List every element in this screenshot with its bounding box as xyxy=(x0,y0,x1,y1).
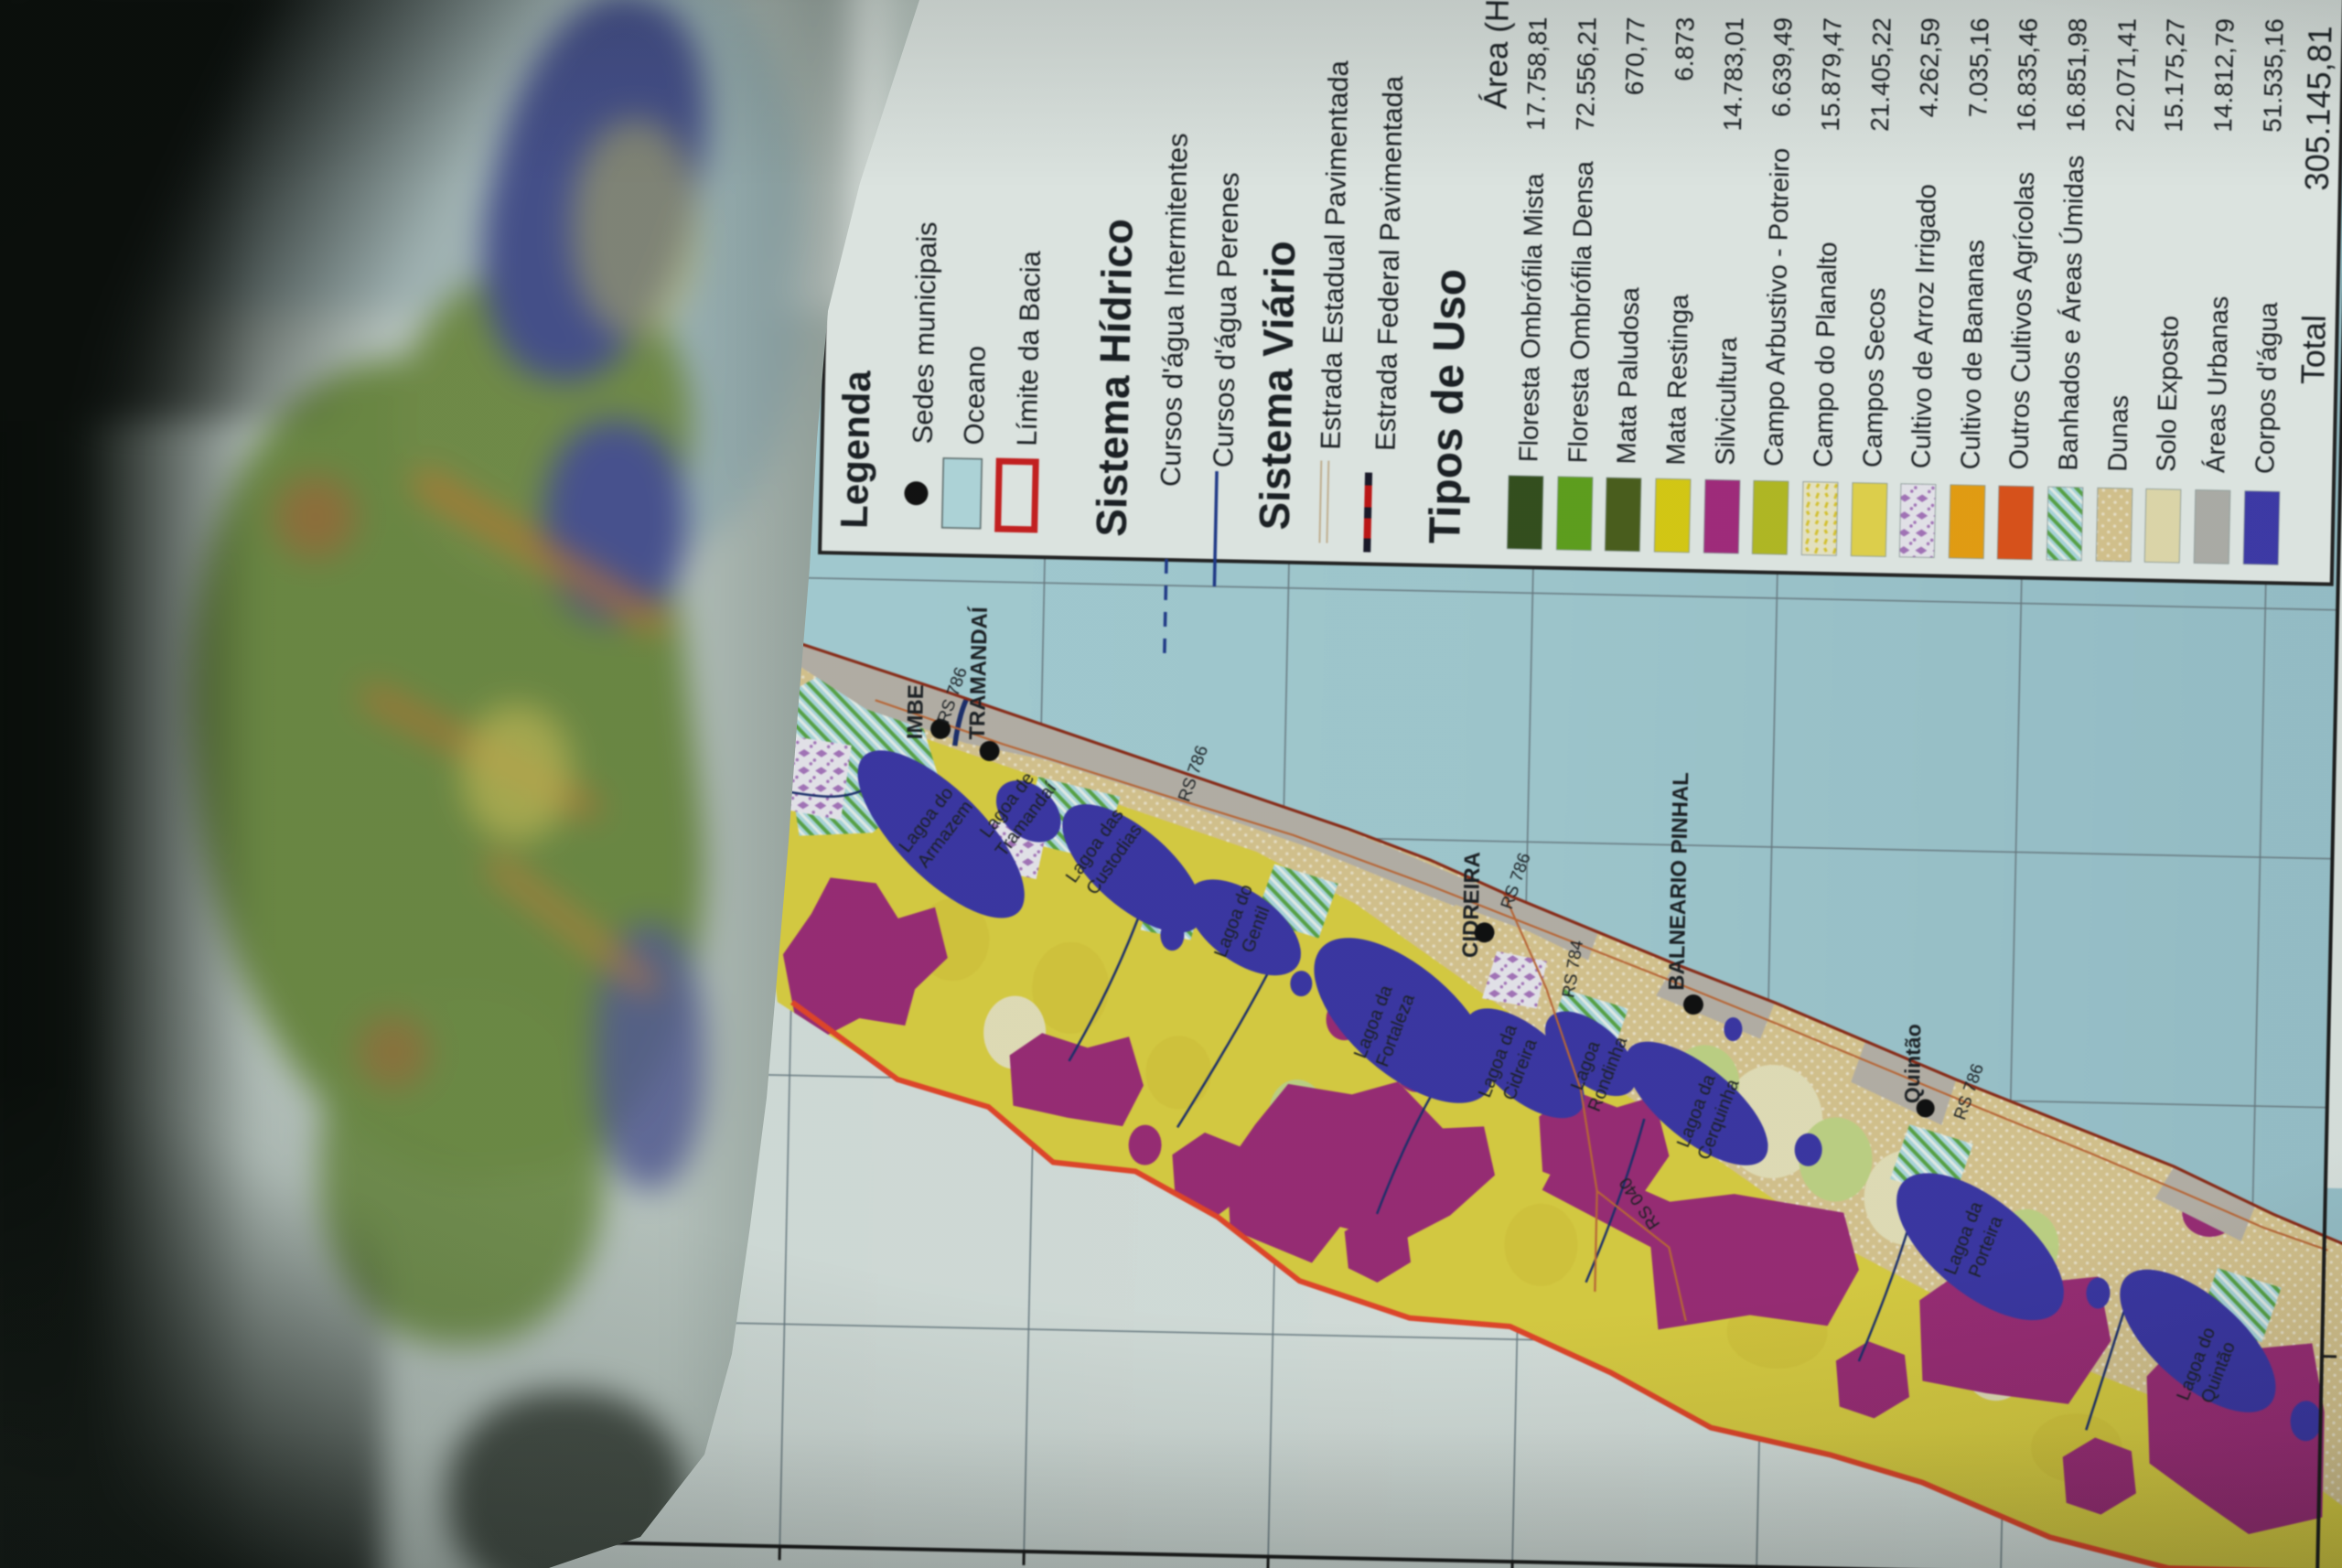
svg-text:Legenda: Legenda xyxy=(833,370,879,529)
svg-text:Sistema Hídrico: Sistema Hídrico xyxy=(1088,219,1142,538)
svg-text:Outros Cultivos Agrícolas: Outros Cultivos Agrícolas xyxy=(2004,172,2040,470)
svg-text:17.758,81: 17.758,81 xyxy=(1521,16,1552,131)
svg-text:Quintão: Quintão xyxy=(1900,1024,1926,1103)
svg-text:14.783,01: 14.783,01 xyxy=(1718,17,1749,132)
svg-text:Áreas Urbanas: Áreas Urbanas xyxy=(2200,295,2234,473)
svg-text:51.535,16: 51.535,16 xyxy=(2258,18,2289,133)
svg-text:Tipos de Uso: Tipos de Uso xyxy=(1421,268,1475,544)
svg-text:Área (HA): Área (HA) xyxy=(1477,0,1516,110)
svg-text:Campos Secos: Campos Secos xyxy=(1858,287,1891,467)
svg-text:Cultivo de Arroz Irrigado: Cultivo de Arroz Irrigado xyxy=(1907,184,1942,469)
svg-text:15.879,47: 15.879,47 xyxy=(1816,17,1847,132)
svg-text:IMBE: IMBE xyxy=(903,684,929,740)
svg-text:Campo do Planalto: Campo do Planalto xyxy=(1809,242,1842,467)
svg-text:Sedes municipais: Sedes municipais xyxy=(907,221,943,445)
svg-text:Sistema Viário: Sistema Viário xyxy=(1251,241,1305,531)
svg-text:Mata Paludosa: Mata Paludosa xyxy=(1612,286,1645,465)
svg-text:16.851,98: 16.851,98 xyxy=(2061,17,2092,132)
svg-text:Cultivo de Bananas: Cultivo de Bananas xyxy=(1956,240,1990,470)
svg-text:Cursos d'água Perenes: Cursos d'água Perenes xyxy=(1207,172,1245,468)
svg-text:16.835,46: 16.835,46 xyxy=(2012,17,2043,132)
svg-text:Solo Exposto: Solo Exposto xyxy=(2152,316,2185,473)
svg-text:14.812,79: 14.812,79 xyxy=(2208,18,2240,133)
svg-text:72.556,21: 72.556,21 xyxy=(1571,16,1602,131)
svg-text:305.145,81: 305.145,81 xyxy=(2298,26,2339,191)
svg-text:Corpos d'água: Corpos d'água xyxy=(2251,301,2283,474)
svg-text:Total: Total xyxy=(2294,315,2333,385)
svg-text:670,77: 670,77 xyxy=(1620,16,1650,95)
svg-text:Dunas: Dunas xyxy=(2103,395,2134,472)
svg-text:15.175,27: 15.175,27 xyxy=(2159,18,2190,133)
svg-text:CIDREIRA: CIDREIRA xyxy=(1458,852,1485,959)
svg-text:Oceano: Oceano xyxy=(958,346,992,446)
svg-text:BALNEARIO PINHAL: BALNEARIO PINHAL xyxy=(1664,772,1693,991)
svg-text:Límite da Bacia: Límite da Bacia xyxy=(1011,250,1047,446)
svg-text:Floresta Ombrófila Mista: Floresta Ombrófila Mista xyxy=(1514,172,1550,462)
svg-text:21.405,22: 21.405,22 xyxy=(1865,17,1896,132)
svg-text:Mata Restinga: Mata Restinga xyxy=(1661,293,1694,465)
svg-text:6.873: 6.873 xyxy=(1670,16,1699,81)
svg-text:7.035,16: 7.035,16 xyxy=(1963,17,1993,118)
svg-text:Silvicultura: Silvicultura xyxy=(1711,336,1743,466)
svg-text:4.262,59: 4.262,59 xyxy=(1914,17,1944,118)
svg-text:6.639,49: 6.639,49 xyxy=(1767,17,1797,118)
svg-text:22.071,41: 22.071,41 xyxy=(2111,17,2142,132)
